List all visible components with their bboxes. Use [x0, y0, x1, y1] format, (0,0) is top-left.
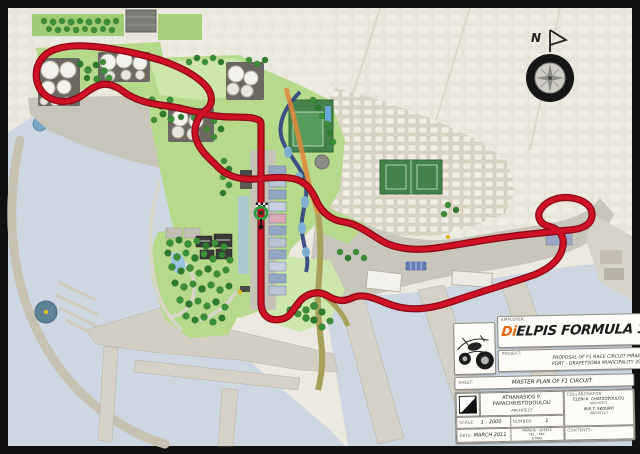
architect-block: ATHANASIOS P. PAPACHRISTODOULOU ARCHITEC…	[455, 388, 636, 444]
date-row: DATE: MARCH 2011 PIRAEUS - GREECE TEL. /…	[456, 427, 564, 443]
date-value: MARCH 2011	[472, 432, 508, 439]
architect-name-cell: ATHANASIOS P. PAPACHRISTODOULOU ARCHITEC…	[480, 391, 564, 417]
f1-car-sketch-panel	[453, 322, 496, 375]
north-arrow-icon	[550, 30, 566, 45]
contact-box: PIRAEUS - GREECE TEL. / FAX. E-MAIL	[510, 428, 564, 441]
monogram-icon	[459, 396, 477, 414]
marker-dot-yellow	[446, 235, 450, 239]
north-green-strip2	[158, 14, 202, 40]
cruise-terminal	[366, 270, 402, 292]
lighthouse-light	[44, 310, 48, 314]
number-cell: NUMBER: 1	[510, 416, 564, 427]
project-description: PROPOSAL OF F1 RACE CIRCUIT PIRAEUS PORT…	[502, 354, 640, 369]
compass-rose: N	[505, 18, 595, 116]
project-panel: PROJECT: PROPOSAL OF F1 RACE CIRCUIT PIR…	[498, 347, 640, 372]
title-block: EMPLOYER: DiELPIS FORMULA 1 PROJECT: PRO…	[453, 313, 636, 444]
number-label: NUMBER:	[513, 419, 533, 424]
dielpis-formula1-logo: DiELPIS FORMULA 1	[501, 321, 640, 340]
architect-monogram	[456, 392, 480, 416]
scale-label: SCALE:	[459, 420, 474, 425]
contents-label: CONTENTS:	[567, 427, 631, 433]
north-green-strip	[32, 14, 124, 36]
date-label: DATE:	[459, 433, 472, 438]
marker-dot-yellow2	[238, 290, 242, 294]
port-shed	[452, 271, 493, 288]
architect-title: ARCHITECT	[511, 407, 532, 412]
east-terminal-shed2	[604, 268, 624, 280]
contents-cell: CONTENTS:	[564, 425, 634, 440]
sheet-panel: SHEET: MASTER PLAN OF F1 CIRCUIT	[454, 373, 634, 390]
scale-value: 1 : 2000	[475, 419, 508, 426]
east-terminal-shed	[600, 250, 622, 264]
f1-car-sketch-icon	[454, 325, 495, 372]
date-cell: DATE: MARCH 2011	[457, 429, 510, 442]
sheet-title: MASTER PLAN OF F1 CIRCUIT	[473, 377, 630, 386]
scale-cell: SCALE: 1 : 2000	[457, 417, 510, 428]
sheet-label: SHEET:	[458, 381, 473, 386]
north-label: N	[531, 31, 541, 45]
number-value: 1	[533, 418, 562, 425]
collaborator-entry: IRIS T. SKOURTI ARCHITECT	[567, 406, 631, 416]
employer-panel: EMPLOYER: DiELPIS FORMULA 1	[497, 313, 640, 348]
architect-name: ATHANASIOS P. PAPACHRISTODOULOU	[481, 394, 563, 408]
stadium	[126, 10, 156, 32]
drawing-sheet: N EMPLOYER: DiELPIS FORMULA 1	[0, 0, 640, 454]
collaborator-cell: COLLABORATOR: ELENI K. CHATZOPOULOU ARCH…	[564, 389, 635, 426]
